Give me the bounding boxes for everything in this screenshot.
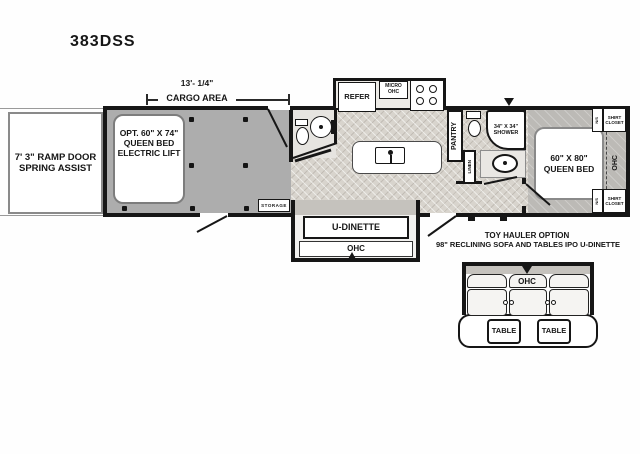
u-dinette-label: U-DINETTE — [332, 222, 380, 233]
cargo-opt-queen-bed: OPT. 60" X 74" QUEEN BED ELECTRIC LIFT — [113, 114, 185, 204]
shirt-closet-top-line2: CLOSET — [605, 120, 623, 125]
dinette-slide-wall-bottom — [291, 258, 420, 262]
ramp-door-label-line1: 7' 3" RAMP DOOR — [10, 152, 101, 163]
ramp-door-label-line2: SPRING ASSIST — [10, 163, 101, 174]
sofa-seat-back-3 — [549, 274, 589, 288]
ns-top-label: N/S — [595, 117, 600, 124]
sofa-seat-back-1 — [467, 274, 507, 288]
dimension-tick-right — [288, 94, 290, 105]
storage-cabinet: STORAGE — [258, 199, 290, 212]
garage-partition-wall — [289, 110, 293, 162]
garage-sink-drain — [319, 125, 323, 129]
roof-marker-triangle — [504, 98, 514, 106]
tie-down-dot — [244, 206, 249, 211]
nightstand-bottom: N/S — [592, 189, 603, 213]
queen-bed-label-line2: QUEEN BED — [544, 164, 595, 174]
dinette-ohc-bench: OHC — [299, 241, 413, 257]
tie-down-dot — [189, 117, 194, 122]
table-2: TABLE — [537, 319, 571, 344]
table-1-label: TABLE — [492, 327, 516, 336]
ramp-door: 7' 3" RAMP DOOR SPRING ASSIST — [8, 112, 103, 214]
shower-label-line2: SHOWER — [494, 130, 519, 136]
top-wall-cargo — [103, 106, 268, 110]
burner-icon — [429, 85, 437, 93]
burner-icon — [416, 85, 424, 93]
ns-bottom-label: N/S — [595, 198, 600, 205]
ramp-extension-line-bottom — [0, 215, 104, 216]
bath-toilet-tank — [466, 111, 481, 119]
shirt-closet-top: SHIRT CLOSET — [603, 108, 626, 132]
linen-label: LINEN — [467, 160, 472, 174]
dimension-tick-left — [146, 94, 148, 105]
garage-toilet-icon — [296, 127, 309, 145]
sofa-tables-outline — [458, 314, 598, 348]
bath-sink-drain — [503, 161, 507, 165]
bedroom-wall-lower — [522, 206, 526, 217]
floorplan-canvas: 383DSS 13'- 1/4" CARGO AREA 7' 3" RAMP D… — [0, 0, 640, 454]
cargo-bed-label-line2: QUEEN BED — [115, 138, 183, 148]
entry-step-mark-1 — [468, 216, 475, 221]
option-note-line2: 98" RECLINING SOFA AND TABLES IPO U-DINE… — [428, 241, 628, 250]
refer-label: REFER — [344, 93, 369, 102]
bedroom-ohc-label: OHC — [612, 155, 620, 171]
sofa-slide-wall-left — [462, 262, 466, 315]
refrigerator: REFER — [338, 82, 376, 112]
dinette-ohc-label: OHC — [347, 244, 365, 253]
burner-icon — [429, 97, 437, 105]
table-1: TABLE — [487, 319, 521, 344]
bottom-wall-seg1 — [103, 213, 200, 217]
dinette-slide-wall-right — [416, 200, 420, 262]
tie-down-dot — [190, 206, 195, 211]
shirt-closet-bottom-line2: CLOSET — [605, 201, 623, 206]
bottom-wall-seg4 — [456, 213, 630, 217]
linen-cabinet: LINEN — [463, 150, 476, 184]
rear-wall — [103, 106, 107, 217]
bottom-wall-seg2 — [228, 213, 293, 217]
cup-holder-icon — [509, 300, 514, 305]
queen-bed-label-line1: 60" X 80" — [550, 153, 587, 163]
cup-holder-icon — [545, 300, 550, 305]
ramp-extension-line-top — [0, 108, 104, 109]
u-dinette-table: U-DINETTE — [303, 216, 409, 239]
sofa-cushion-2 — [509, 289, 547, 316]
sofa-ohc-label: OHC — [505, 277, 549, 286]
nightstand-top: N/S — [592, 108, 603, 132]
pantry-label: PANTRY — [451, 122, 459, 150]
shirt-closet-bottom: SHIRT CLOSET — [603, 189, 626, 213]
sofa-cushion-1 — [467, 289, 507, 316]
sofa-slide-wall-right — [590, 262, 594, 315]
cargo-length-dimension: 13'- 1/4" — [147, 78, 247, 88]
storage-label: STORAGE — [261, 203, 287, 208]
microwave-ohc: MICRO OHC — [379, 81, 408, 99]
garage-bath-wall — [334, 110, 337, 144]
tie-down-dot — [243, 117, 248, 122]
dinette-slide-wall-left — [291, 200, 295, 262]
model-title: 383DSS — [70, 33, 136, 52]
island-faucet-stem — [390, 155, 392, 163]
entry-step-mark-2 — [500, 216, 507, 221]
table-2-label: TABLE — [542, 327, 566, 336]
sofa-slide-wall-top — [462, 262, 594, 266]
tie-down-dot — [243, 163, 248, 168]
bath-toilet-icon — [468, 120, 481, 137]
pantry-cabinet: PANTRY — [447, 110, 463, 162]
tie-down-dot — [189, 163, 194, 168]
front-wall — [626, 106, 630, 217]
micro-label-line2: OHC — [388, 90, 399, 96]
tie-down-dot — [122, 206, 127, 211]
cup-holder-icon — [551, 300, 556, 305]
dinette-slide-floor-band — [293, 200, 418, 215]
shower-stall: 34" X 34" SHOWER — [486, 110, 526, 150]
cargo-exterior-door-swing — [197, 216, 227, 232]
garage-toilet-tank — [295, 119, 308, 126]
cup-holder-icon — [503, 300, 508, 305]
range-stove — [410, 80, 444, 111]
burner-icon — [416, 97, 424, 105]
cargo-bed-label-line1: OPT. 60" X 74" — [115, 128, 183, 138]
cargo-bed-label-line3: ELECTRIC LIFT — [115, 148, 183, 158]
cargo-area-dimension-label: CARGO AREA — [158, 93, 236, 104]
